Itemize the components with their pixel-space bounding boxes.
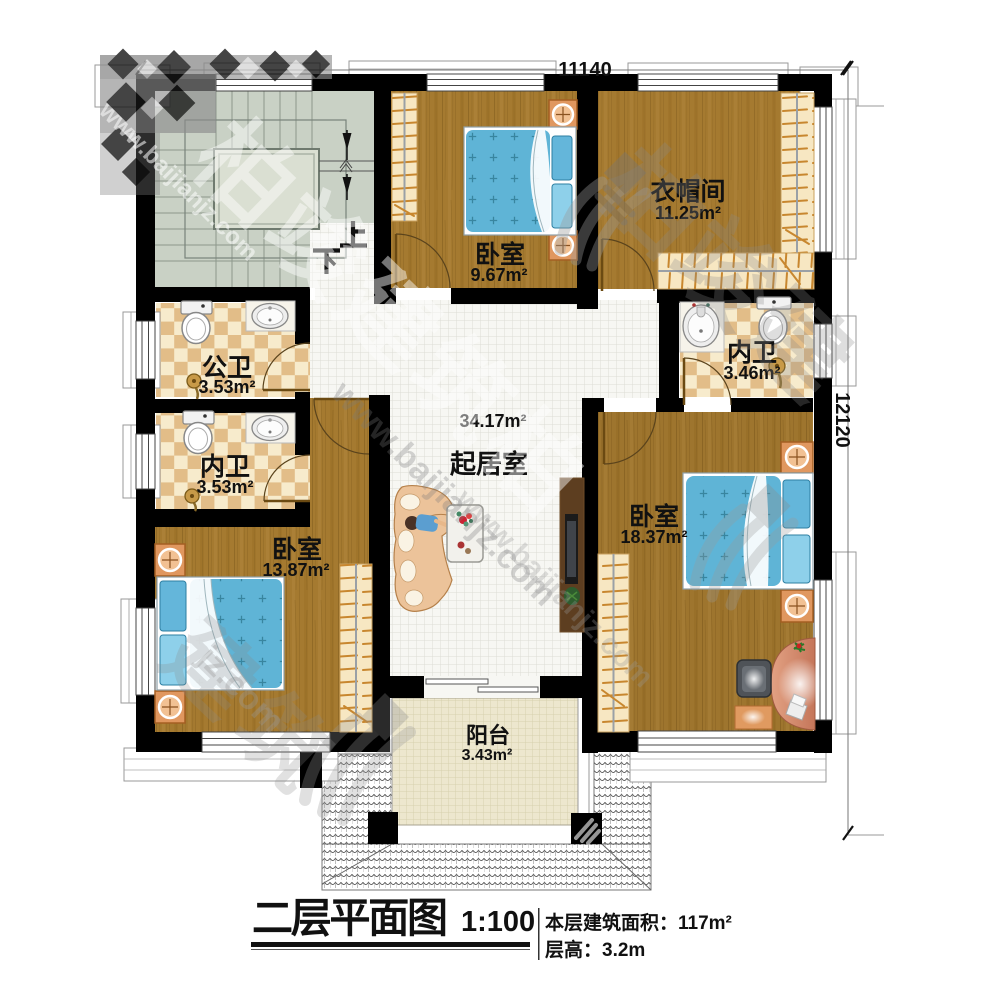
svg-text:12120: 12120 [831,392,853,448]
svg-text:3.53m²: 3.53m² [198,377,255,397]
svg-text:二层平面图: 二层平面图 [252,895,448,941]
svg-text:18.37m²: 18.37m² [620,527,687,547]
svg-text:3.53m²: 3.53m² [196,477,253,497]
svg-text:13.87m²: 13.87m² [262,560,329,580]
svg-text:层高：3.2m: 层高：3.2m [545,938,645,961]
svg-text:9.67m²: 9.67m² [470,265,527,285]
svg-text:11140: 11140 [558,59,611,81]
svg-text:1:100: 1:100 [461,906,535,938]
svg-text:本层建筑面积：117m²: 本层建筑面积：117m² [545,911,732,934]
svg-text:阳台: 阳台 [466,723,510,748]
svg-text:3.43m²: 3.43m² [462,747,513,764]
